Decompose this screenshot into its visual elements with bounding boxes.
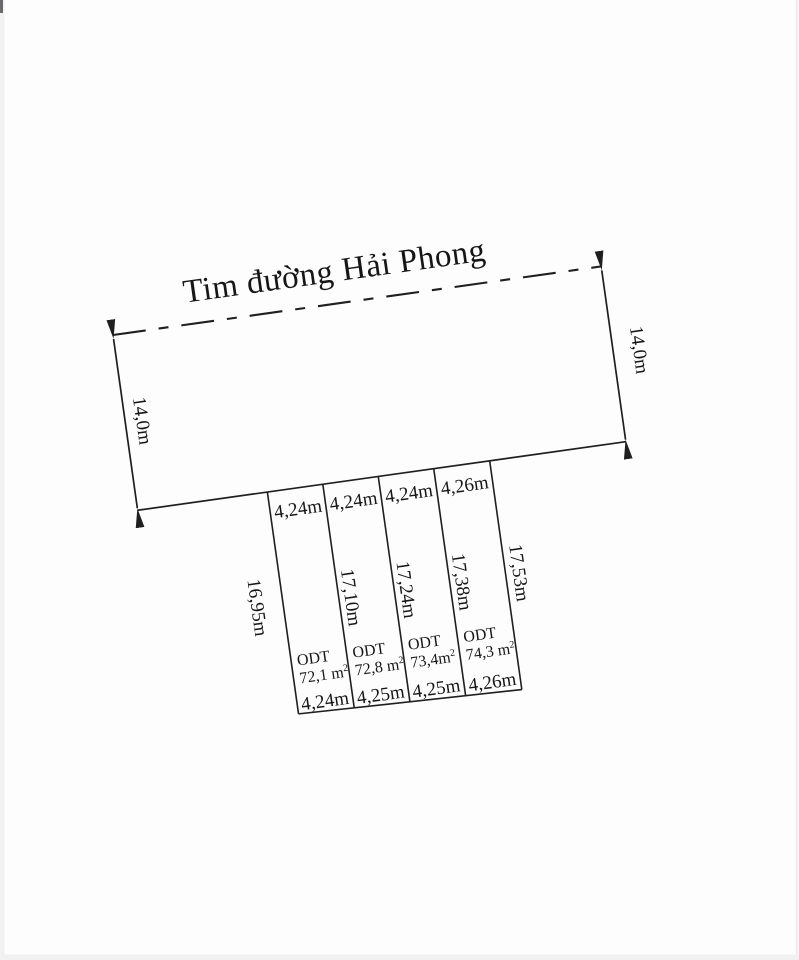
scanned-cadastral-page: Tim đường Hải Phong 14,0m 14,0m 4,24m 4,… — [0, 0, 799, 960]
plot4-bottom-width-label: 4,26m — [467, 669, 518, 697]
side-length-label-3-4: 17,38m — [447, 552, 476, 612]
scan-edge-right — [796, 0, 798, 960]
road-centerline-label: Tim đường Hải Phong — [181, 233, 488, 311]
road-depth-label-right: 14,0m — [625, 325, 653, 376]
plot1-top-width-label: 4,24m — [273, 496, 324, 524]
plot1-bottom-width-label: 4,24m — [300, 688, 351, 716]
plot4-top-width-label: 4,26m — [439, 472, 490, 500]
plot2-bottom-width-label: 4,25m — [355, 681, 406, 709]
side-length-label-1-2: 17,10m — [336, 568, 365, 628]
dimension-line-right — [602, 270, 626, 439]
plot2-top-width-label: 4,24m — [328, 488, 379, 516]
plot-boundary-left — [267, 492, 298, 714]
scan-edge-bottom — [0, 955, 799, 960]
land-survey-drawing: Tim đường Hải Phong 14,0m 14,0m 4,24m 4,… — [0, 0, 799, 960]
road-depth-label-left: 14,0m — [128, 396, 156, 447]
plot3-bottom-width-label: 4,25m — [411, 675, 462, 703]
scan-edge-left — [0, 0, 5, 960]
side-length-label-outer-left: 16,95m — [242, 578, 271, 638]
scan-corner-mark — [0, 0, 3, 13]
side-length-label-2-3: 17,24m — [391, 560, 420, 620]
plot3-top-width-label: 4,24m — [384, 480, 435, 508]
